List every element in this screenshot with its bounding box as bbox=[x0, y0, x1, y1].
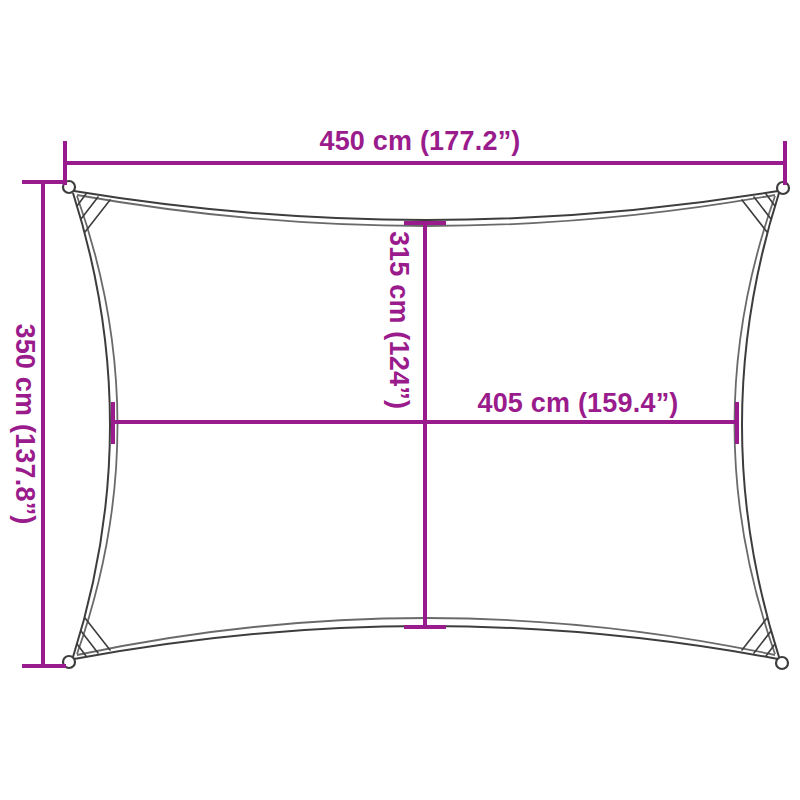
sail-top-edge-outer bbox=[74, 191, 778, 220]
left-height-label: 350 cm (137.8”) bbox=[9, 323, 39, 524]
sail-left-edge-outer bbox=[73, 193, 110, 657]
top-width-label: 450 cm (177.2”) bbox=[319, 127, 520, 157]
inner-height-label: 315 cm (124”) bbox=[383, 231, 413, 409]
corner-stitch-bottom-left bbox=[85, 618, 110, 650]
corner-ring-bottom-right bbox=[776, 657, 788, 669]
inner-width-label: 405 cm (159.4”) bbox=[477, 389, 678, 419]
corner-stitch-bottom-right bbox=[742, 618, 767, 650]
corner-stitch-bottom-right bbox=[754, 631, 771, 653]
corner-stitch-top-right bbox=[742, 200, 767, 232]
corner-stitch-bottom-left bbox=[81, 631, 98, 653]
sail-bottom-edge-outer bbox=[74, 626, 778, 659]
diagram-canvas: 450 cm (177.2”) 350 cm (137.8”) 315 cm (… bbox=[0, 0, 800, 800]
sail-right-edge-outer bbox=[742, 193, 779, 657]
corner-stitch-top-left bbox=[85, 200, 110, 232]
corner-stitch-top-right bbox=[754, 197, 771, 219]
sail-right-edge-inner bbox=[735, 196, 776, 654]
corner-stitch-top-left bbox=[81, 197, 98, 219]
